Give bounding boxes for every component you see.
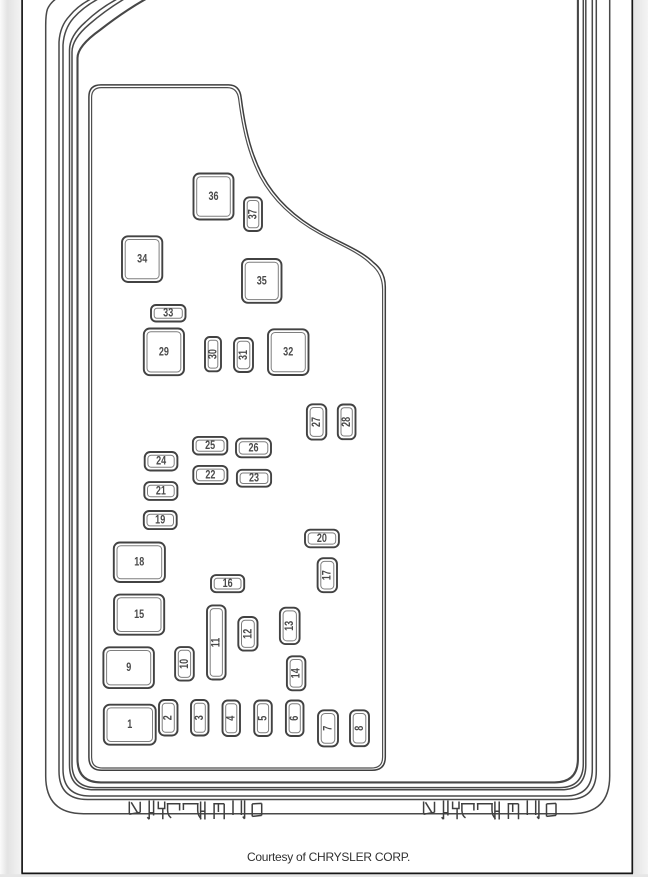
svg-text:27: 27 [310,417,324,427]
svg-text:28: 28 [340,417,354,427]
svg-text:21: 21 [156,484,166,498]
svg-text:11: 11 [209,638,223,648]
svg-text:3: 3 [193,715,207,720]
svg-text:Courtesy of CHRYSLER CORP.: Courtesy of CHRYSLER CORP. [247,850,410,864]
svg-text:8: 8 [353,726,367,731]
svg-text:1: 1 [127,718,132,732]
svg-text:26: 26 [248,441,258,455]
svg-text:31: 31 [237,350,251,360]
svg-text:10: 10 [178,659,192,669]
svg-text:5: 5 [256,716,270,721]
svg-text:17: 17 [320,570,334,580]
svg-text:7: 7 [321,726,335,731]
svg-text:6: 6 [288,716,302,721]
svg-text:12: 12 [241,629,255,639]
svg-text:33: 33 [163,306,173,320]
svg-text:32: 32 [283,345,293,359]
svg-text:34: 34 [137,252,147,266]
svg-text:2: 2 [161,715,175,720]
svg-text:23: 23 [249,471,259,485]
svg-text:14: 14 [289,668,303,678]
svg-text:36: 36 [208,190,218,204]
svg-text:9: 9 [126,661,131,675]
svg-text:15: 15 [134,608,144,622]
svg-text:4: 4 [224,716,238,721]
svg-text:37: 37 [246,209,260,219]
svg-text:18: 18 [134,555,144,569]
svg-text:24: 24 [156,454,166,468]
svg-text:22: 22 [205,468,215,482]
svg-text:13: 13 [283,621,297,631]
svg-text:19: 19 [155,513,165,527]
svg-text:20: 20 [317,532,327,546]
svg-text:25: 25 [205,439,215,453]
svg-text:35: 35 [257,274,267,288]
svg-text:30: 30 [206,349,220,359]
svg-text:29: 29 [159,345,169,359]
svg-text:16: 16 [223,577,233,591]
